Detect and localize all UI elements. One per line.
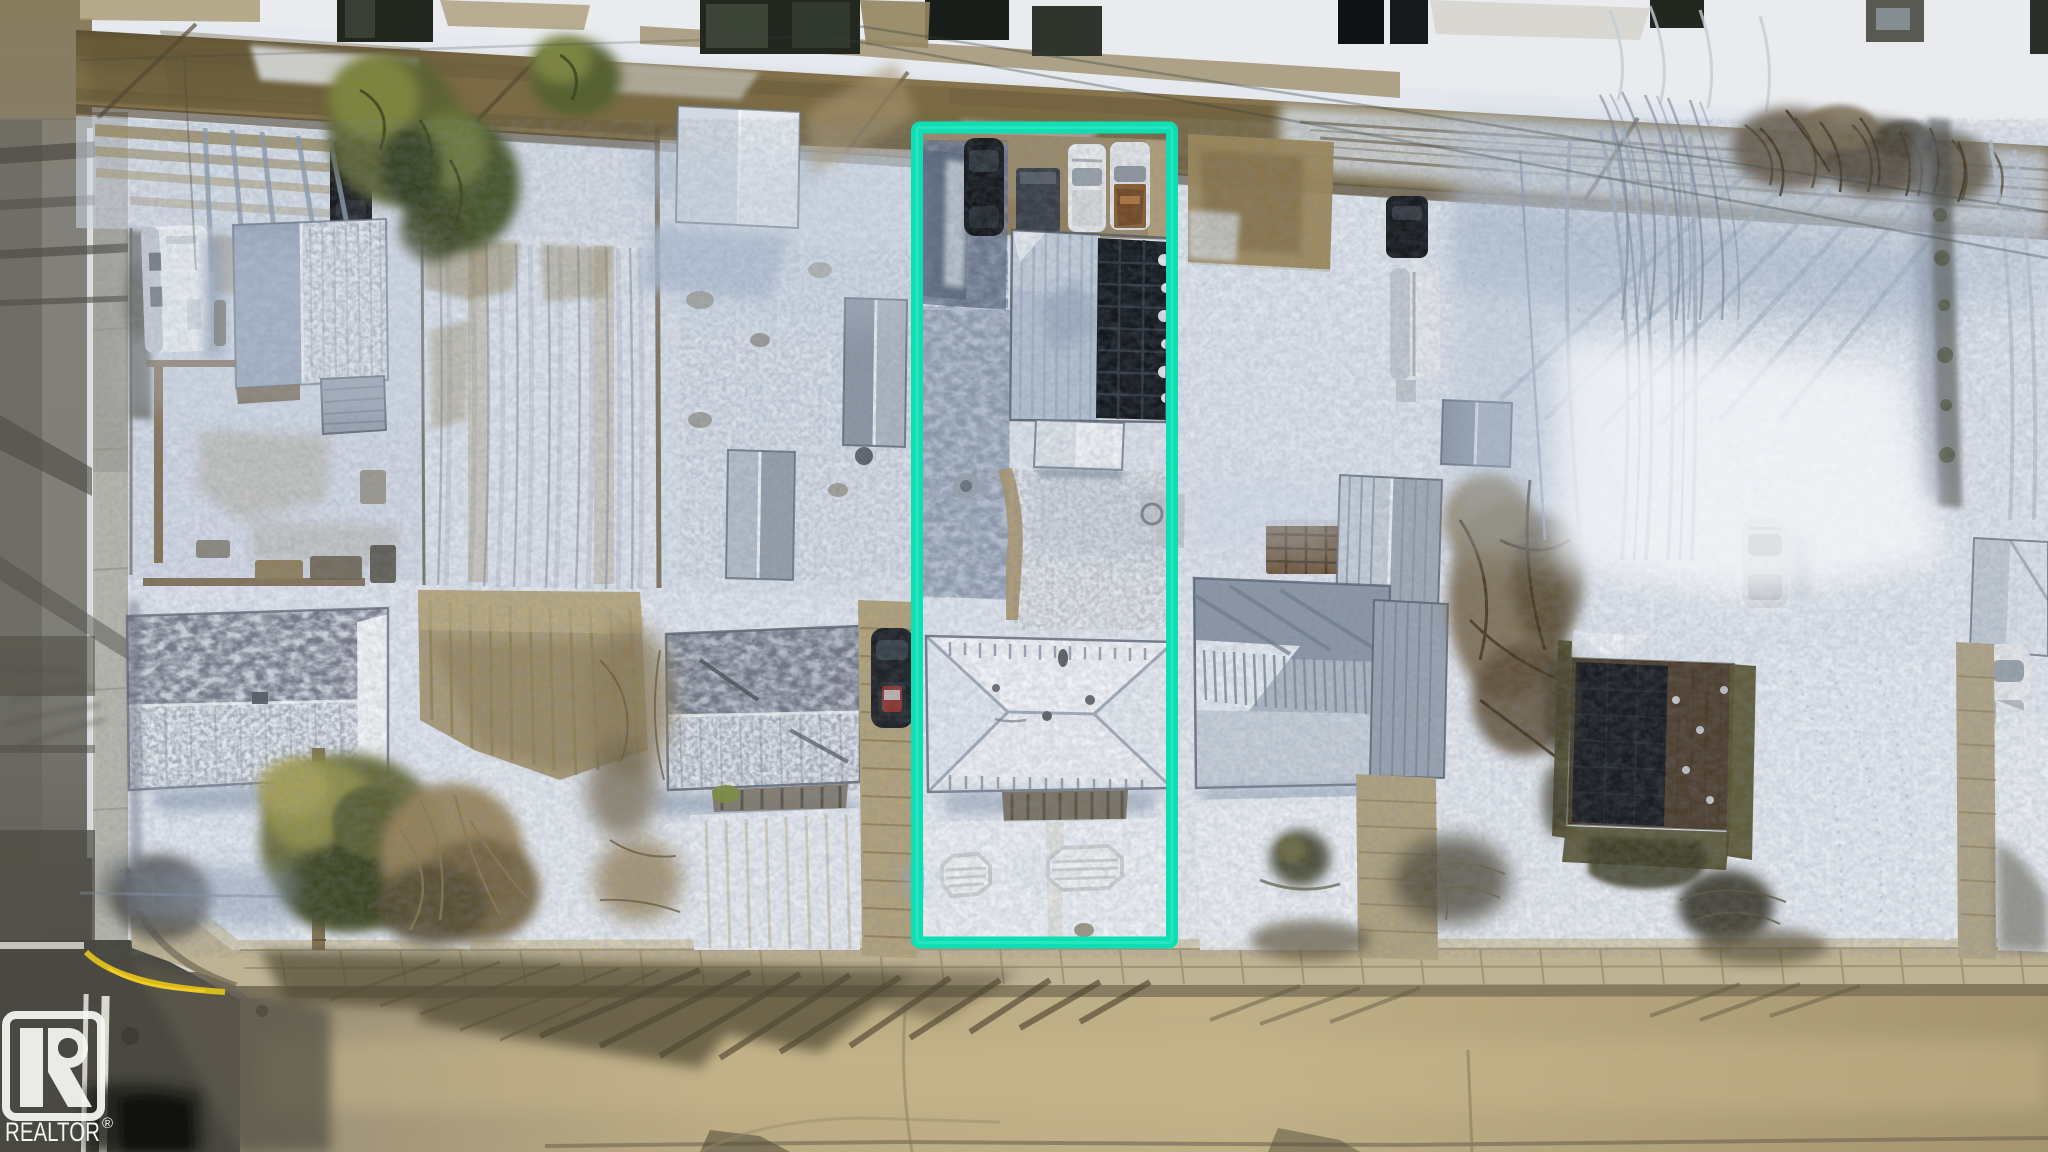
- svg-text:REALTOR: REALTOR: [5, 1117, 100, 1147]
- svg-text:®: ®: [102, 1115, 113, 1132]
